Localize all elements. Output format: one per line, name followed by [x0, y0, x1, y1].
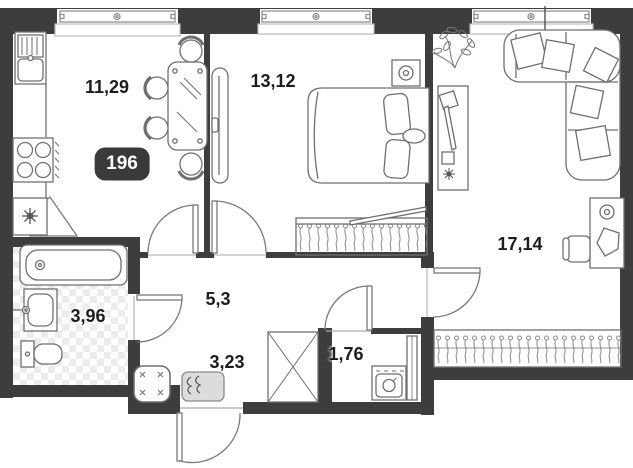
bathroom-door	[134, 295, 182, 342]
living-door	[427, 268, 480, 317]
bedroom-window	[258, 9, 374, 34]
unit-number-badge: 196	[96, 149, 148, 179]
kitchen-door	[148, 205, 198, 255]
dining-table-icon	[168, 62, 207, 150]
closet-wardrobe-icon	[268, 332, 318, 402]
corner-sofa-icon	[504, 30, 620, 180]
living-wardrobe-icon	[434, 330, 621, 367]
desk-icon	[563, 198, 624, 268]
bedroom-wardrobe-icon	[296, 207, 427, 255]
bed-icon	[308, 88, 429, 183]
tall-wardrobe-icon	[212, 68, 228, 183]
bedroom-door	[212, 201, 266, 255]
kitchen-sink-icon	[15, 32, 46, 84]
living-furniture	[432, 6, 624, 367]
bathroom-area-label: 3,96	[70, 307, 105, 325]
stool-icon	[134, 366, 170, 402]
washing-machine-icon	[372, 366, 406, 400]
closet-area-label: 3,23	[209, 353, 244, 371]
kitchen-window	[55, 9, 180, 36]
hallway-area-label: 5,3	[205, 290, 230, 308]
laundry-door	[325, 286, 372, 331]
living-area-label: 17,14	[497, 235, 542, 253]
bathtub-icon	[20, 245, 127, 285]
wall-lamp-icon	[392, 60, 420, 86]
toilet-icon	[21, 341, 62, 367]
stove-icon	[13, 138, 59, 182]
bedroom-area-label: 13,12	[250, 72, 295, 90]
floor-plan: 11,29 13,12 17,14 5,3 3,96 3,23 1,76 196	[0, 0, 633, 468]
laundry-area-label: 1,76	[328, 345, 363, 363]
shoe-cabinet-icon	[182, 372, 224, 401]
kitchen-area-label: 11,29	[85, 78, 129, 96]
bedroom-furniture	[212, 60, 429, 255]
tv-console-icon	[438, 86, 468, 190]
entrance-door	[177, 408, 243, 463]
duct-icon	[407, 336, 417, 400]
kitchen-furniture	[13, 32, 207, 235]
fridge-icon	[13, 198, 47, 235]
